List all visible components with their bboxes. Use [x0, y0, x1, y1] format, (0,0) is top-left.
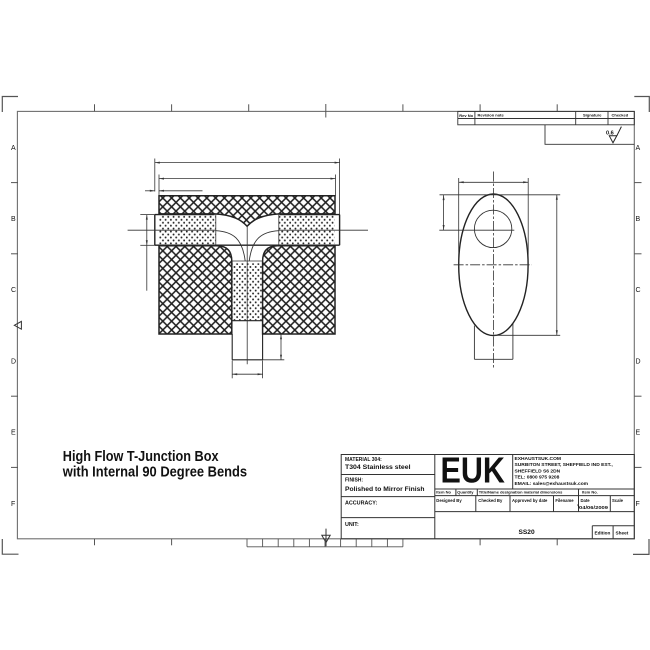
svg-text:Scale: Scale: [612, 498, 624, 503]
svg-text:SURBITON STREET, SHEFFIELD IND: SURBITON STREET, SHEFFIELD IND EST.,: [515, 462, 614, 468]
svg-text:04/06/2009: 04/06/2009: [579, 505, 608, 510]
svg-text:F: F: [636, 501, 640, 508]
svg-text:E: E: [636, 430, 641, 437]
svg-text:Filename: Filename: [555, 498, 574, 503]
svg-text:Quantity: Quantity: [457, 490, 474, 495]
svg-text:D: D: [636, 358, 641, 365]
svg-text:SS20: SS20: [519, 529, 535, 536]
svg-text:0.6: 0.6: [606, 131, 614, 137]
svg-text:Approved by date: Approved by date: [512, 498, 548, 503]
svg-text:A: A: [11, 145, 16, 152]
svg-text:Checked: Checked: [612, 113, 629, 118]
svg-text:Designed By: Designed By: [436, 498, 462, 503]
svg-text:Sheet: Sheet: [616, 530, 629, 535]
svg-text:EUK: EUK: [441, 450, 506, 491]
svg-text:E: E: [11, 430, 16, 437]
svg-text:MATERIAL 304:: MATERIAL 304:: [345, 457, 382, 463]
svg-text:EXHAUSTSUK.COM: EXHAUSTSUK.COM: [515, 456, 561, 462]
svg-text:F: F: [11, 501, 15, 508]
svg-text:T304 Stainless steel: T304 Stainless steel: [345, 464, 411, 471]
svg-text:TEL: 0800 975 9208: TEL: 0800 975 9208: [515, 475, 560, 481]
svg-text:ACCURACY:: ACCURACY:: [345, 501, 377, 507]
svg-text:A: A: [636, 145, 641, 152]
svg-text:Signature: Signature: [583, 113, 602, 118]
svg-text:C: C: [636, 287, 641, 294]
svg-text:Item No.: Item No.: [582, 490, 598, 495]
svg-text:Item No: Item No: [436, 490, 451, 495]
svg-text:C: C: [11, 287, 16, 294]
svg-text:UNIT:: UNIT:: [345, 522, 359, 528]
svg-text:High Flow T-Junction Box: High Flow T-Junction Box: [63, 449, 219, 465]
svg-text:Date: Date: [581, 498, 591, 503]
svg-text:with Internal 90 Degree Bends: with Internal 90 Degree Bends: [62, 464, 247, 480]
svg-text:SHEFFIELD S6 2DN: SHEFFIELD S6 2DN: [515, 469, 561, 475]
svg-text:FINISH:: FINISH:: [345, 477, 363, 483]
svg-text:B: B: [636, 216, 641, 223]
svg-text:Checked By: Checked By: [478, 498, 503, 503]
svg-text:EMAIL: sales@exhaustsuk.com: EMAIL: sales@exhaustsuk.com: [515, 481, 589, 487]
svg-text:Polished to Mirror Finish: Polished to Mirror Finish: [345, 486, 425, 493]
svg-text:D: D: [11, 358, 16, 365]
svg-text:Revision note: Revision note: [478, 113, 505, 118]
svg-text:Rev No: Rev No: [459, 113, 473, 118]
svg-text:B: B: [11, 216, 16, 223]
svg-text:Title/Name designation materia: Title/Name designation material dimensio…: [479, 490, 563, 495]
svg-text:Edition: Edition: [595, 530, 611, 535]
